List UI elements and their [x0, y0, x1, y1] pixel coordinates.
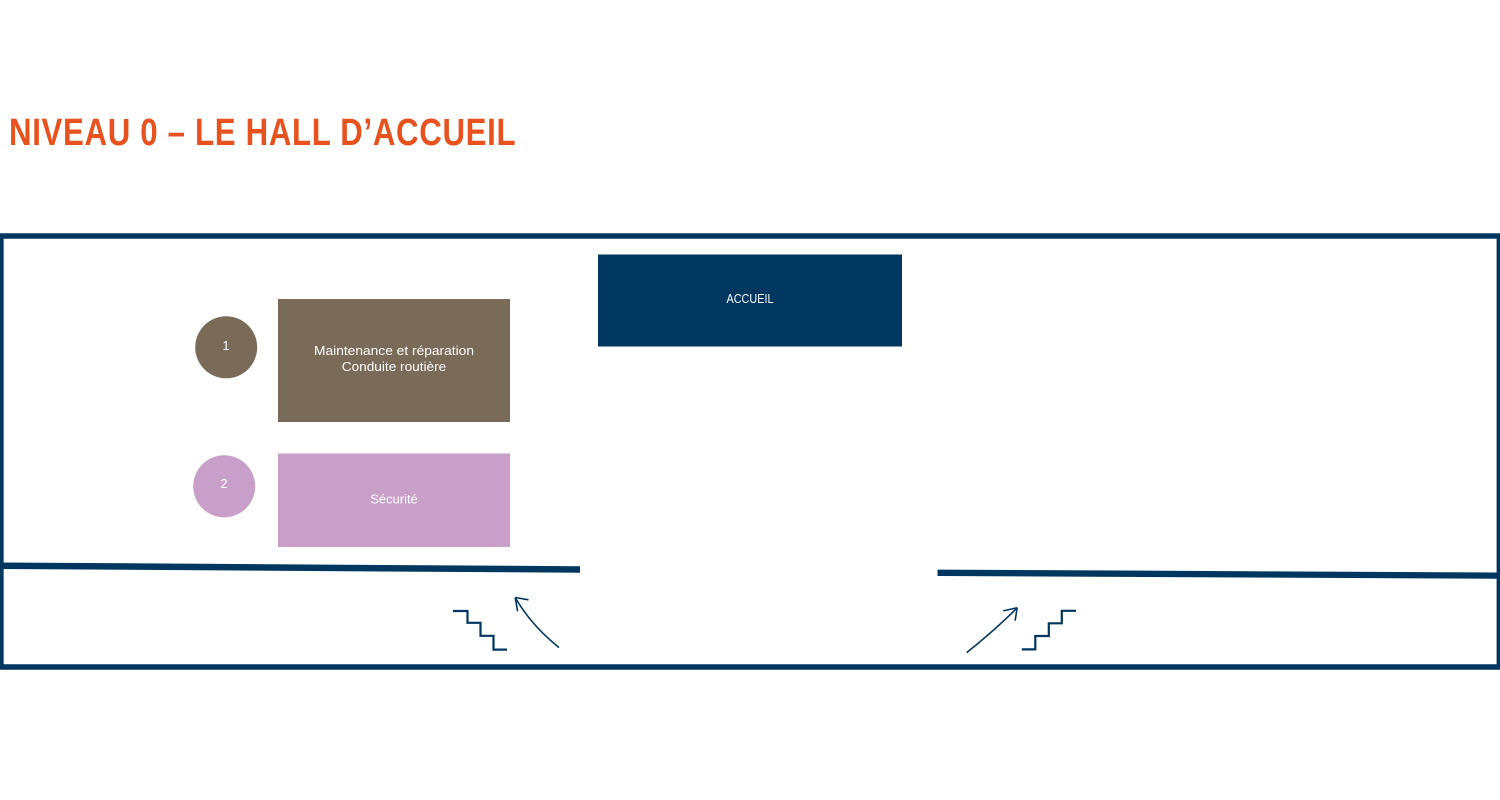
- svg-text:ACCUEIL: ACCUEIL: [727, 292, 774, 306]
- svg-text:Maintenance et réparation: Maintenance et réparation: [314, 344, 474, 358]
- svg-text:Conduite routière: Conduite routière: [342, 360, 447, 374]
- svg-text:1: 1: [223, 339, 230, 353]
- svg-text:2: 2: [221, 477, 228, 491]
- svg-text:Sécurité: Sécurité: [370, 493, 418, 507]
